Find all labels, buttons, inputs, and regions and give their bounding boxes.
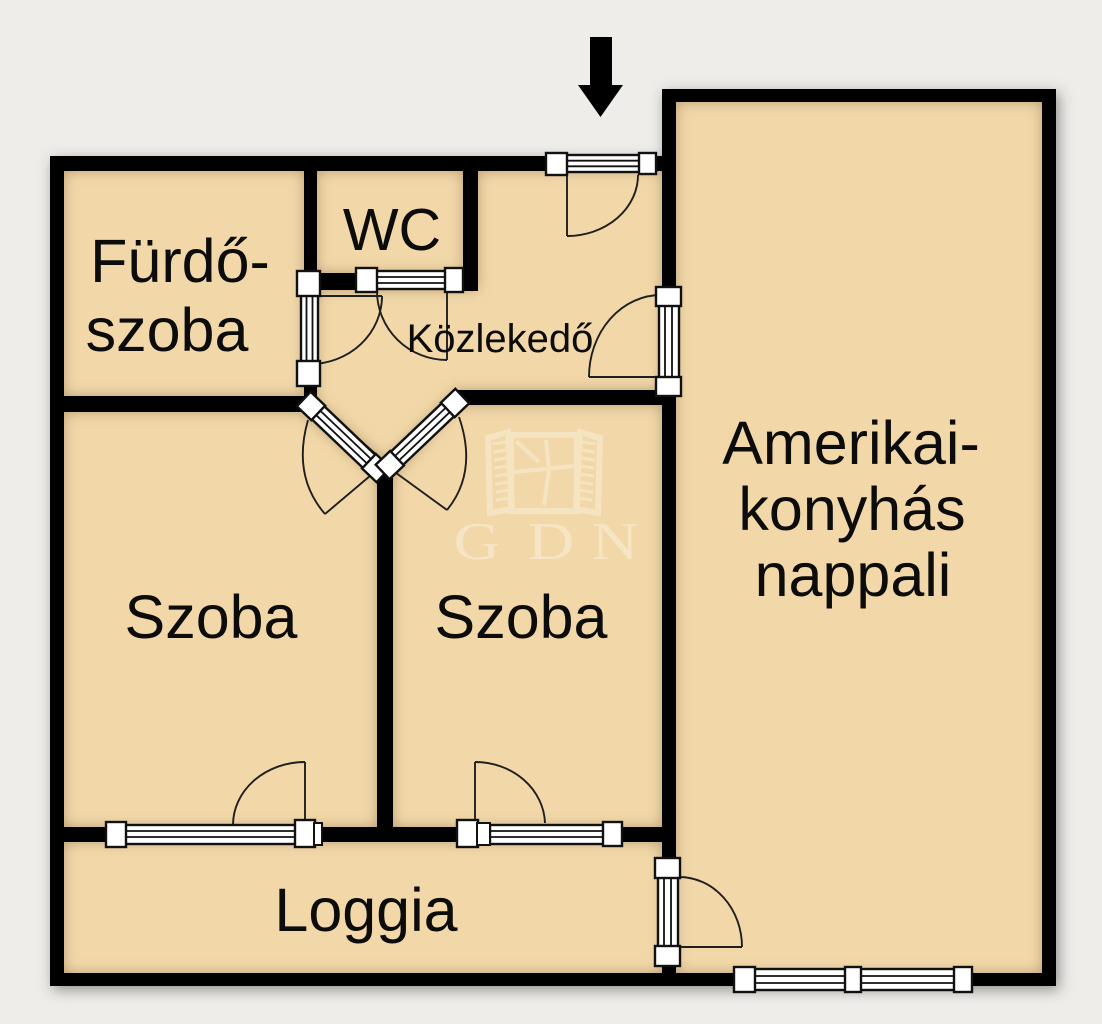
svg-text:Loggia: Loggia	[274, 876, 457, 944]
svg-text:Amerikai-: Amerikai-	[722, 409, 980, 477]
svg-text:szoba: szoba	[86, 296, 249, 364]
svg-text:N: N	[592, 511, 639, 570]
svg-text:Fürdő-: Fürdő-	[90, 227, 270, 295]
svg-text:nappali: nappali	[755, 541, 952, 609]
svg-text:Szoba: Szoba	[125, 583, 298, 651]
svg-text:G: G	[454, 511, 501, 570]
svg-text:Közlekedő: Közlekedő	[407, 317, 594, 361]
svg-text:Szoba: Szoba	[435, 583, 608, 651]
svg-text:konyhás: konyhás	[738, 475, 965, 543]
svg-text:WC: WC	[343, 197, 441, 263]
svg-text:D: D	[528, 511, 575, 570]
